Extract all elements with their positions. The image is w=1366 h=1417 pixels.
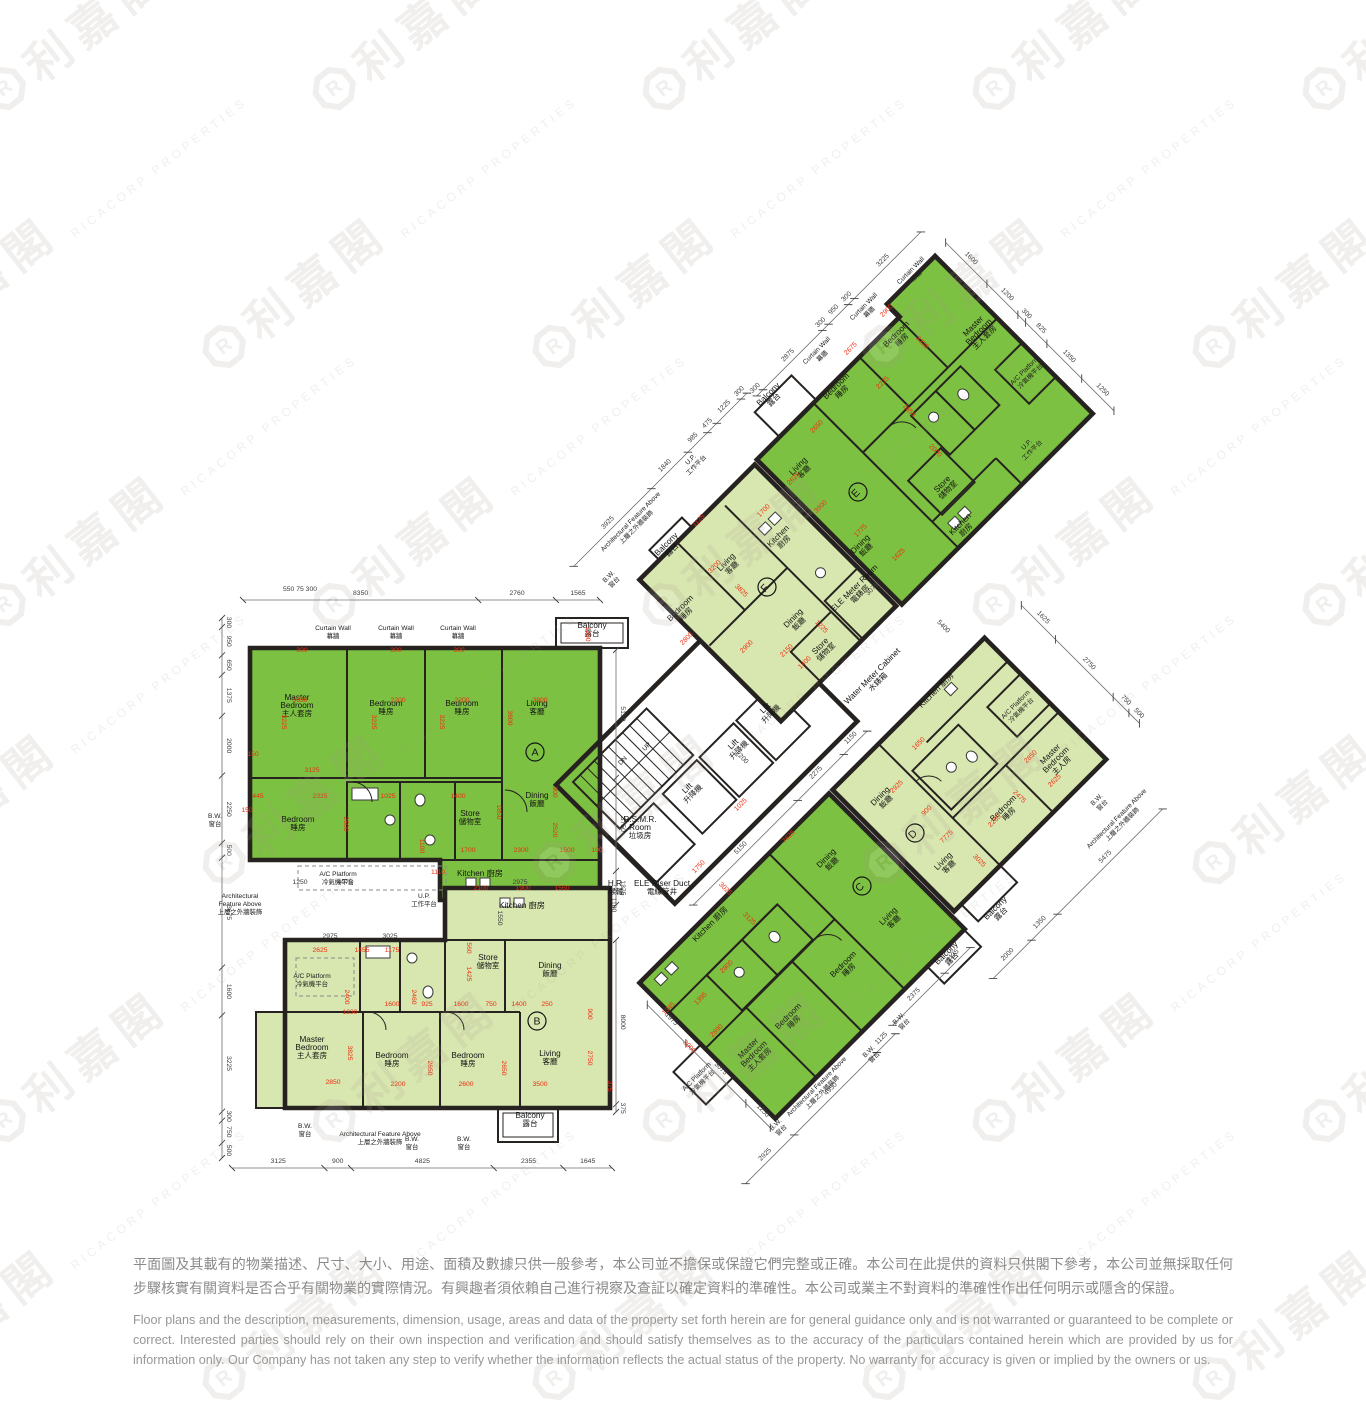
black-dimension: 1100 bbox=[610, 898, 617, 913]
red-dimension: 150 bbox=[241, 807, 253, 814]
black-dimension: 1250 bbox=[292, 879, 307, 886]
chain-dimension: 2000 bbox=[1000, 947, 1016, 963]
chain-dimension: 2375 bbox=[906, 987, 922, 1003]
chain-dimension: 500 bbox=[225, 1145, 232, 1157]
red-dimension: 750 bbox=[485, 1001, 497, 1008]
annotation-label: A/C Platform冷氣機平台 bbox=[681, 1061, 718, 1098]
chain-dimension: 2925 bbox=[757, 1147, 773, 1163]
black-dimension: 5400 bbox=[935, 619, 951, 635]
annotation-label: A/C Platform冷氣機平台 bbox=[293, 973, 331, 988]
red-dimension: 2675 bbox=[843, 341, 859, 357]
red-dimension: 1700 bbox=[460, 847, 475, 854]
red-dimension: 2200 bbox=[454, 697, 469, 704]
red-dimension: 2850 bbox=[325, 1079, 340, 1086]
red-dimension: 3125 bbox=[304, 767, 319, 774]
annotation-label: B.W.窗台 bbox=[1090, 792, 1111, 813]
red-dimension: 3225 bbox=[438, 714, 445, 729]
lift-2 bbox=[700, 723, 774, 797]
chain-dimension: 950 bbox=[225, 635, 232, 647]
chain-dimension: 3125 bbox=[271, 1158, 286, 1165]
annotation-label: B.W.窗台 bbox=[405, 1136, 419, 1151]
dim-chain: 3125900482523551645 bbox=[229, 1158, 615, 1171]
chain-dimension: 2250 bbox=[225, 802, 232, 817]
red-dimension: 1550 bbox=[554, 885, 569, 892]
room-label: R.S.M.R.Room垃圾房 bbox=[623, 815, 656, 840]
chain-dimension: 1840 bbox=[657, 458, 673, 474]
chain-dimension: 300 bbox=[225, 617, 232, 629]
chain-dimension: 300 bbox=[225, 1111, 232, 1123]
red-dimension: 3900 bbox=[532, 697, 547, 704]
room-label: MasterBedroom主人套房 bbox=[295, 1035, 328, 1060]
chain-dimension: 900 bbox=[332, 1158, 344, 1165]
red-dimension: 2325 bbox=[312, 793, 327, 800]
red-dimension: 1600 bbox=[453, 1001, 468, 1008]
chain-dimension: 1200 bbox=[999, 287, 1015, 303]
room-label: Kitchen 廚房 bbox=[499, 900, 545, 910]
annotation-label: Curtain Wall幕牆 bbox=[440, 625, 476, 640]
room-label: Store儲物室 bbox=[477, 953, 500, 970]
red-dimension: 2100 bbox=[473, 885, 488, 892]
chain-dimension: 750 bbox=[225, 1126, 232, 1138]
red-dimension: 2650 bbox=[500, 1060, 507, 1075]
chain-dimension: 1600 bbox=[963, 251, 979, 267]
annotation-label: B.W.窗台 bbox=[298, 1123, 312, 1138]
red-dimension: 445 bbox=[252, 793, 264, 800]
chain-dimension: 1225 bbox=[716, 399, 732, 415]
room-label: Balcony露台 bbox=[982, 894, 1015, 927]
red-dimension: 1400 bbox=[511, 1001, 526, 1008]
floor-plan-page: { "watermark": {"symbol": "R", "brand_cn… bbox=[0, 0, 1366, 1366]
chain-dimension: 2750 bbox=[1081, 656, 1097, 672]
red-dimension: 2460 bbox=[410, 989, 417, 1004]
black-dimension: 2975 bbox=[512, 879, 527, 886]
red-dimension: 1500 bbox=[559, 847, 574, 854]
red-dimension: 2600 bbox=[342, 816, 349, 831]
annotation-label: B.W.窗台 bbox=[602, 569, 623, 590]
red-dimension: 1100 bbox=[418, 839, 425, 854]
watermark-brand-cn: 利嘉閣 bbox=[1218, 1230, 1366, 1385]
red-dimension: 300 bbox=[390, 647, 402, 654]
chain-dimension: 1250 bbox=[1095, 382, 1111, 398]
red-dimension: 1110 bbox=[431, 869, 445, 876]
room-label: Store儲物室 bbox=[459, 809, 482, 826]
annotation-label: Curtain Wall幕牆 bbox=[802, 335, 838, 371]
disclaimer-english: Floor plans and the description, measure… bbox=[133, 1310, 1233, 1370]
chain-dimension: 8000 bbox=[619, 1015, 626, 1030]
dim-chain: 3009506501375200022505003675160032253007… bbox=[219, 615, 232, 1161]
room-label: H.R.喉轆 bbox=[608, 879, 624, 896]
annotation-label: Curtain Wall幕牆 bbox=[315, 625, 351, 640]
chain-dimension: 2000 bbox=[225, 738, 232, 753]
red-dimension: 2200 bbox=[390, 1081, 405, 1088]
chain-dimension: 375 bbox=[619, 1102, 626, 1114]
red-dimension: 3825 bbox=[346, 1045, 353, 1060]
unit-b-shape bbox=[256, 888, 610, 1142]
black-dimension: 550 75 300 bbox=[283, 586, 317, 593]
red-dimension: 2650 bbox=[426, 1060, 433, 1075]
red-dimension: 1850 bbox=[495, 804, 502, 819]
red-dimension: 300 bbox=[453, 647, 465, 654]
red-dimension: 2200 bbox=[390, 697, 405, 704]
chain-dimension: 1625 bbox=[1035, 610, 1051, 626]
room-label: Balcony露台 bbox=[577, 621, 607, 638]
red-dimension: 900 bbox=[551, 786, 558, 798]
red-dimension: 1600 bbox=[384, 1001, 399, 1008]
chain-dimension: 650 bbox=[225, 659, 232, 671]
annotation-label: U.P.工作平台 bbox=[411, 893, 437, 908]
chain-dimension: 1125 bbox=[874, 1031, 889, 1046]
red-dimension: 2400 bbox=[343, 989, 350, 1004]
red-dimension: 560 bbox=[465, 942, 472, 954]
red-dimension: 1200 bbox=[584, 626, 591, 641]
black-dimension: 2975 bbox=[322, 933, 337, 940]
red-dimension: 2600 bbox=[458, 1081, 473, 1088]
red-dimension: 2625 bbox=[312, 947, 327, 954]
room-label: Lift升降機 bbox=[676, 777, 704, 805]
red-dimension: 2520 bbox=[551, 822, 558, 837]
room-label: Kitchen 廚房 bbox=[457, 868, 503, 878]
red-dimension: 3500 bbox=[532, 1081, 547, 1088]
annotation-label: B.W.窗台 bbox=[457, 1136, 471, 1151]
dim-chain: 8000375 bbox=[613, 937, 626, 1115]
chain-dimension: 1645 bbox=[580, 1158, 595, 1165]
black-dimension: 1550 bbox=[496, 910, 503, 925]
chain-dimension: 2355 bbox=[521, 1158, 536, 1165]
red-dimension: 1900 bbox=[515, 885, 530, 892]
red-dimension: 300 bbox=[296, 647, 308, 654]
chain-dimension: 3225 bbox=[225, 1056, 232, 1071]
chain-dimension: 5150 bbox=[619, 706, 626, 721]
annotation-label: B.W.窗台 bbox=[862, 1044, 883, 1065]
red-dimension: 1425 bbox=[465, 966, 472, 981]
black-dimension: 3025 bbox=[382, 933, 397, 940]
annotation-label: U.P.工作平台 bbox=[679, 448, 708, 477]
red-dimension: 250 bbox=[541, 1001, 553, 1008]
red-dimension: 1455 bbox=[354, 947, 369, 954]
annotation-label: Curtain Wall幕牆 bbox=[378, 625, 414, 640]
disclaimer: 平面圖及其載有的物業描述、尺寸、大小、用途、面積及數據只供一般參考，本公司並不擔… bbox=[133, 1252, 1233, 1370]
chain-dimension: 2875 bbox=[780, 348, 796, 364]
red-dimension: 3225 bbox=[280, 714, 287, 729]
red-dimension: 3600 bbox=[506, 710, 513, 725]
red-dimension: 375 bbox=[606, 1080, 613, 1092]
red-dimension: 1400 bbox=[450, 793, 465, 800]
floor-plan: 2200307554003925184098547512253003002875… bbox=[0, 0, 1366, 1245]
chain-dimension: 500 bbox=[225, 845, 232, 857]
chain-dimension: 8350 bbox=[353, 590, 368, 597]
red-dimension: 900 bbox=[586, 1008, 593, 1020]
chain-dimension: 2760 bbox=[509, 590, 524, 597]
red-dimension: 925 bbox=[421, 1001, 433, 1008]
annotation-label: B.W.窗台 bbox=[892, 1011, 913, 1032]
watermark-brand-cn: 利嘉閣 bbox=[0, 1230, 71, 1385]
black-dimension: 4075 bbox=[337, 879, 352, 886]
unit-letter-text: A bbox=[531, 747, 538, 759]
chain-dimension: 3225 bbox=[875, 253, 891, 269]
annotation-label: B.W.窗台 bbox=[208, 813, 222, 828]
red-dimension: 2750 bbox=[586, 1050, 593, 1065]
room-label: Water Meter Cabinet水錶箱 bbox=[842, 646, 908, 712]
chain-dimension: 1375 bbox=[225, 688, 232, 703]
annotation-label: Curtain Wall幕牆 bbox=[849, 291, 885, 327]
disclaimer-chinese: 平面圖及其載有的物業描述、尺寸、大小、用途、面積及數據只供一般參考，本公司並不擔… bbox=[133, 1252, 1233, 1300]
chain-dimension: 1565 bbox=[570, 590, 585, 597]
red-dimension: 100 bbox=[591, 847, 603, 854]
unit-letter-text: B bbox=[533, 1016, 540, 1028]
red-dimension: 1230 bbox=[342, 1009, 357, 1016]
chain-dimension: 1350 bbox=[1061, 349, 1077, 365]
red-dimension: 150 bbox=[247, 751, 259, 758]
chain-dimension: 3925 bbox=[600, 515, 616, 531]
red-dimension: 3650 bbox=[292, 697, 307, 704]
chain-dimension: 4825 bbox=[415, 1158, 430, 1165]
room-label: Balcony露台 bbox=[515, 1111, 545, 1128]
red-dimension: 2300 bbox=[513, 847, 528, 854]
chain-dimension: 1600 bbox=[225, 984, 232, 999]
red-dimension: 3225 bbox=[370, 714, 377, 729]
annotation-label: ArchitecturalFeature Above上層之外牆裝飾 bbox=[218, 893, 263, 916]
chain-dimension: 1350 bbox=[1032, 915, 1048, 931]
unit-a-shape bbox=[250, 618, 628, 900]
floor-plan-canvas: 2200307554003925184098547512253003002875… bbox=[0, 0, 1366, 1240]
red-dimension: 1025 bbox=[380, 793, 395, 800]
red-dimension: 1175 bbox=[385, 947, 400, 954]
chain-dimension: 5475 bbox=[1098, 849, 1114, 865]
annotation-label: B.W.窗台 bbox=[769, 1117, 790, 1138]
